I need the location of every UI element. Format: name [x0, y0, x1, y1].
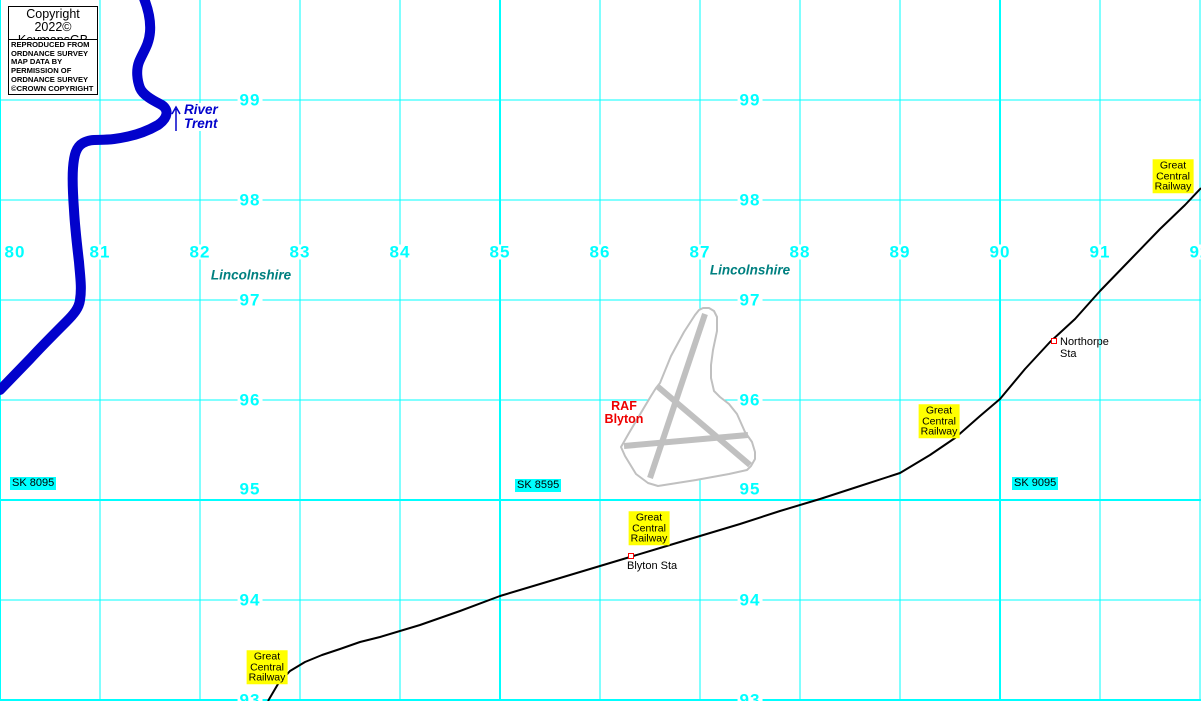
river-label-line1: River [184, 103, 218, 117]
railway-sign-2: GreatCentralRailway [629, 511, 670, 545]
blyton-label-line1: Blyton Sta [627, 560, 677, 572]
railway-sign-line: Railway [921, 426, 958, 437]
county-label-0: Lincolnshire [210, 268, 292, 283]
railway-sign-line: Great [921, 405, 958, 416]
easting-label-87: 87 [688, 245, 713, 260]
label-overlay: Copyright 2022© KeymapsGB REPRODUCED FRO… [0, 0, 1201, 701]
easting-label-82: 82 [188, 245, 213, 260]
river-label-line2: Trent [184, 117, 218, 131]
copyright-line1: Copyright 2022© [9, 8, 97, 34]
grid-square-label-sk-8595: SK 8595 [515, 479, 561, 492]
easting-label-80: 80 [3, 245, 28, 260]
easting-label-92: 92 [1188, 245, 1201, 260]
railway-sign-3: GreatCentralRailway [247, 650, 288, 684]
railway-sign-1: GreatCentralRailway [919, 404, 960, 438]
easting-label-84: 84 [388, 245, 413, 260]
blyton-station-label: Blyton Sta [627, 560, 677, 572]
easting-label-88: 88 [788, 245, 813, 260]
northing-label-98-1: 98 [738, 193, 763, 208]
easting-label-89: 89 [888, 245, 913, 260]
railway-sign-line: Railway [631, 533, 668, 544]
river-trent-label: River Trent [183, 103, 219, 131]
map-canvas[interactable]: Copyright 2022© KeymapsGB REPRODUCED FRO… [0, 0, 1201, 701]
railway-sign-line: Great [631, 512, 668, 523]
northing-label-98-0: 98 [238, 193, 263, 208]
northing-label-95-0: 95 [238, 482, 263, 497]
easting-label-90: 90 [988, 245, 1013, 260]
northing-label-99-1: 99 [738, 93, 763, 108]
easting-label-81: 81 [88, 245, 113, 260]
easting-label-85: 85 [488, 245, 513, 260]
northing-label-95-1: 95 [738, 482, 763, 497]
raf-label-line2: Blyton [605, 413, 644, 426]
railway-sign-line: Railway [1155, 181, 1192, 192]
northing-label-97-1: 97 [738, 293, 763, 308]
raf-blyton-label: RAF Blyton [605, 400, 644, 426]
northing-label-97-0: 97 [238, 293, 263, 308]
grid-square-label-sk-9095: SK 9095 [1012, 477, 1058, 490]
county-label-1: Lincolnshire [709, 263, 791, 278]
northing-label-93-0: 93 [238, 693, 263, 701]
railway-sign-0: GreatCentralRailway [1153, 159, 1194, 193]
northorpe-label-line2: Sta [1060, 348, 1109, 360]
railway-sign-line: Railway [249, 672, 286, 683]
northing-label-96-1: 96 [738, 393, 763, 408]
northing-label-96-0: 96 [238, 393, 263, 408]
railway-sign-line: Great [1155, 160, 1192, 171]
northing-label-94-1: 94 [738, 593, 763, 608]
northing-label-99-0: 99 [238, 93, 263, 108]
northing-label-93-1: 93 [738, 693, 763, 701]
northorpe-label-line1: Northorpe [1060, 336, 1109, 348]
northorpe-station-label: Northorpe Sta [1060, 336, 1109, 360]
easting-label-91: 91 [1088, 245, 1113, 260]
easting-label-86: 86 [588, 245, 613, 260]
os-notice-line: ©CROWN COPYRIGHT [11, 85, 95, 94]
easting-label-83: 83 [288, 245, 313, 260]
northing-label-94-0: 94 [238, 593, 263, 608]
os-notice-box: REPRODUCED FROMORDNANCE SURVEYMAP DATA B… [8, 39, 98, 95]
grid-square-label-sk-8095: SK 8095 [10, 477, 56, 490]
railway-sign-line: Great [249, 651, 286, 662]
